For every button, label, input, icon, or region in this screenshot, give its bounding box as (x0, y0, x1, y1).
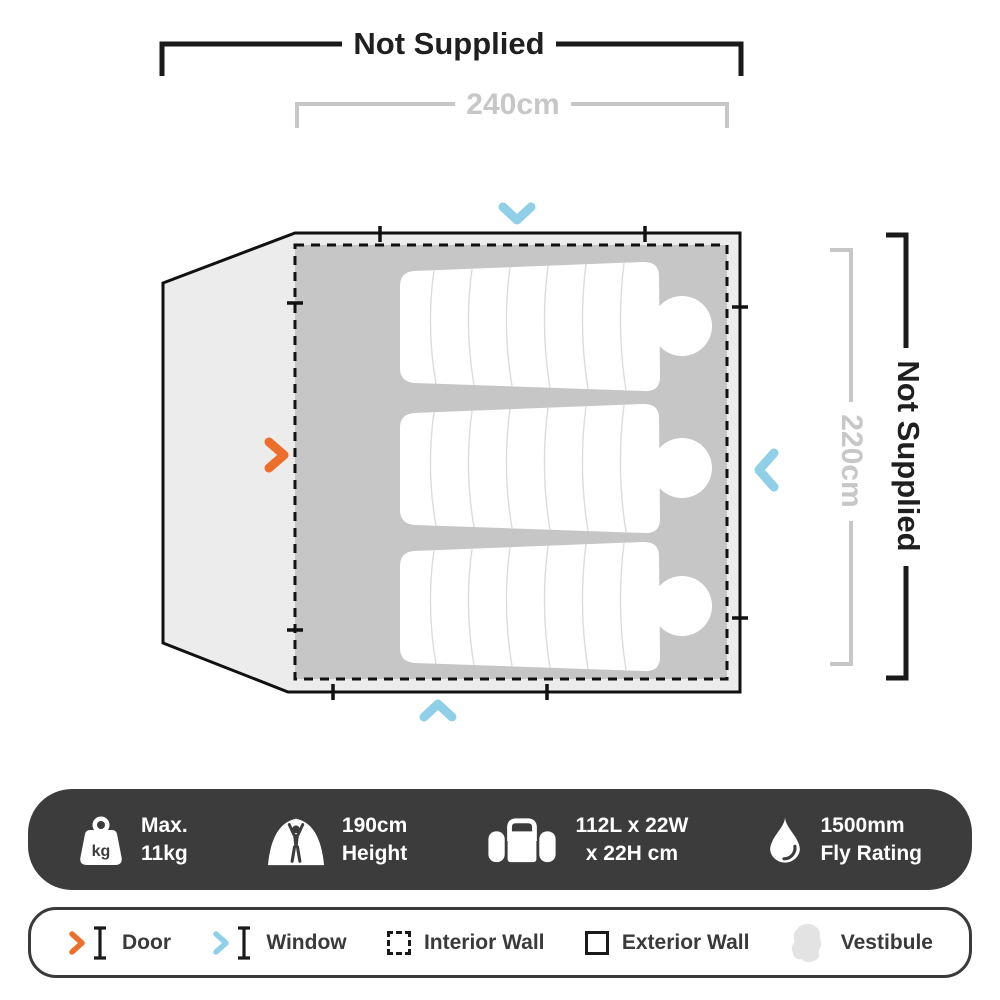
kg-glyph: kg (92, 843, 111, 860)
fly-rating-icon (767, 816, 803, 864)
right-not-supplied-bracket: Not Supplied (886, 235, 926, 678)
window-chevron-icon (211, 929, 231, 957)
weight-icon: kg (78, 815, 124, 865)
right-not-supplied-label: Not Supplied (891, 360, 926, 551)
vestibule-icon (790, 921, 828, 965)
window-arrow-bottom-icon (424, 704, 452, 717)
spec-weight-line1: Max. (141, 812, 188, 839)
door-jamb-icon (91, 924, 109, 962)
specs-bar: kg Max. 11kg 190cm Height 112 (28, 789, 972, 890)
spec-fly-line1: 1500mm (820, 812, 922, 839)
legend-door-label: Door (122, 931, 171, 955)
exterior-wall-icon (585, 931, 609, 955)
spec-height-line1: 190cm (342, 812, 407, 839)
legend-item-door: Door (67, 924, 171, 962)
height-dimension-bracket: 220cm (830, 250, 868, 664)
spec-text-packed-size: 112L x 22W x 22H cm (575, 812, 688, 867)
legend-item-window: Window (211, 924, 346, 962)
spec-height-line2: Height (342, 840, 407, 867)
legend-window-label: Window (266, 931, 346, 955)
width-dimension-bracket: 240cm (297, 88, 727, 128)
top-not-supplied-bracket: Not Supplied (162, 26, 741, 76)
spec-item-fly-rating: 1500mm Fly Rating (767, 812, 922, 867)
spec-text-weight: Max. 11kg (141, 812, 188, 867)
spec-item-height: 190cm Height (267, 812, 407, 867)
tent-floorplan-diagram: Not Supplied 240cm 220cm Not Supplied (0, 0, 1000, 780)
sleeping-bags (400, 262, 712, 671)
spec-text-fly-rating: 1500mm Fly Rating (820, 812, 922, 867)
legend-bar: Door Window Interior Wall Exterior Wall … (28, 907, 972, 978)
packed-size-icon (486, 816, 558, 864)
tent-height-icon (267, 814, 325, 866)
legend-interior-wall-label: Interior Wall (424, 931, 545, 955)
spec-fly-line2: Fly Rating (820, 840, 922, 867)
interior-wall-icon (387, 931, 411, 955)
window-arrow-top-icon (503, 207, 531, 220)
top-not-supplied-label: Not Supplied (353, 26, 544, 61)
window-jamb-icon (235, 924, 253, 962)
spec-packed-line2: x 22H cm (575, 840, 688, 867)
height-dimension-label: 220cm (835, 414, 868, 507)
door-icon (67, 924, 109, 962)
legend-vestibule-label: Vestibule (841, 931, 933, 955)
spec-item-packed-size: 112L x 22W x 22H cm (486, 812, 688, 867)
width-dimension-label: 240cm (466, 88, 559, 121)
door-chevron-icon (67, 929, 87, 957)
legend-item-exterior-wall: Exterior Wall (585, 931, 750, 955)
legend-item-vestibule: Vestibule (790, 921, 933, 965)
legend-exterior-wall-label: Exterior Wall (622, 931, 750, 955)
spec-text-height: 190cm Height (342, 812, 407, 867)
window-arrow-right-icon (759, 453, 774, 487)
spec-item-weight: kg Max. 11kg (78, 812, 188, 867)
spec-packed-line1: 112L x 22W (575, 812, 688, 839)
legend-item-interior-wall: Interior Wall (387, 931, 545, 955)
spec-weight-line2: 11kg (141, 840, 188, 867)
window-icon (211, 924, 253, 962)
